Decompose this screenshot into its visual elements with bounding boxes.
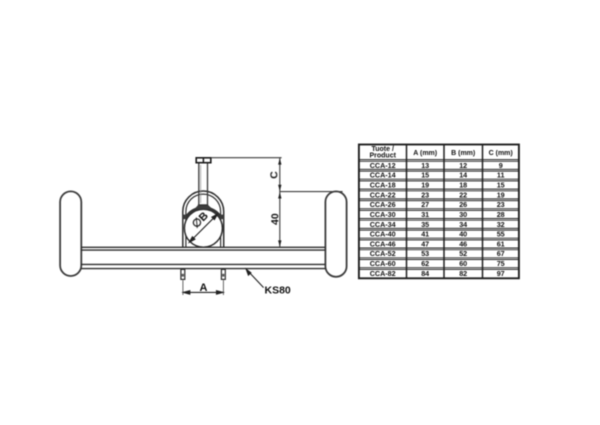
svg-text:CCA-60: CCA-60 bbox=[370, 259, 396, 268]
svg-text:23: 23 bbox=[421, 190, 429, 199]
svg-text:19: 19 bbox=[497, 190, 505, 199]
svg-text:Product: Product bbox=[369, 152, 396, 159]
svg-text:18: 18 bbox=[459, 181, 467, 190]
svg-text:40: 40 bbox=[459, 230, 467, 239]
svg-text:52: 52 bbox=[459, 249, 467, 258]
svg-text:CCA-12: CCA-12 bbox=[370, 161, 396, 170]
svg-text:CCA-46: CCA-46 bbox=[370, 239, 396, 248]
svg-text:14: 14 bbox=[459, 171, 467, 180]
svg-text:15: 15 bbox=[421, 171, 429, 180]
svg-text:35: 35 bbox=[421, 220, 429, 229]
svg-text:KS80: KS80 bbox=[265, 285, 291, 297]
svg-text:CCA-18: CCA-18 bbox=[370, 181, 396, 190]
svg-text:34: 34 bbox=[459, 220, 467, 229]
svg-text:15: 15 bbox=[497, 181, 505, 190]
svg-text:26: 26 bbox=[459, 200, 467, 209]
svg-text:27: 27 bbox=[421, 200, 429, 209]
svg-text:62: 62 bbox=[421, 259, 429, 268]
svg-text:CCA-30: CCA-30 bbox=[370, 210, 396, 219]
svg-text:32: 32 bbox=[497, 220, 505, 229]
svg-text:CCA-34: CCA-34 bbox=[370, 220, 396, 229]
svg-text:CCA-82: CCA-82 bbox=[370, 269, 396, 278]
svg-text:28: 28 bbox=[497, 210, 505, 219]
svg-text:A (mm): A (mm) bbox=[413, 150, 437, 157]
svg-text:46: 46 bbox=[459, 239, 467, 248]
svg-text:30: 30 bbox=[459, 210, 467, 219]
svg-text:60: 60 bbox=[459, 259, 467, 268]
svg-text:9: 9 bbox=[499, 161, 503, 170]
svg-text:CCA-52: CCA-52 bbox=[370, 249, 396, 258]
svg-text:22: 22 bbox=[459, 190, 467, 199]
svg-text:97: 97 bbox=[497, 269, 505, 278]
svg-text:CCA-22: CCA-22 bbox=[370, 190, 396, 199]
svg-text:41: 41 bbox=[421, 230, 429, 239]
svg-text:C: C bbox=[268, 171, 280, 179]
svg-text:67: 67 bbox=[497, 249, 505, 258]
svg-text:61: 61 bbox=[497, 239, 505, 248]
svg-text:B (mm): B (mm) bbox=[451, 150, 475, 157]
svg-text:CCA-14: CCA-14 bbox=[370, 171, 396, 180]
svg-text:84: 84 bbox=[421, 269, 429, 278]
svg-text:CCA-26: CCA-26 bbox=[370, 200, 396, 209]
svg-text:47: 47 bbox=[421, 239, 429, 248]
svg-text:53: 53 bbox=[421, 249, 429, 258]
svg-text:19: 19 bbox=[421, 181, 429, 190]
svg-text:23: 23 bbox=[497, 200, 505, 209]
svg-text:11: 11 bbox=[497, 171, 505, 180]
svg-text:A: A bbox=[200, 282, 208, 294]
svg-text:31: 31 bbox=[421, 210, 429, 219]
svg-text:13: 13 bbox=[421, 161, 429, 170]
svg-text:40: 40 bbox=[269, 213, 281, 225]
svg-text:55: 55 bbox=[497, 230, 505, 239]
svg-text:75: 75 bbox=[497, 259, 505, 268]
svg-text:82: 82 bbox=[459, 269, 467, 278]
svg-text:C (mm): C (mm) bbox=[489, 150, 513, 157]
svg-text:CCA-40: CCA-40 bbox=[370, 230, 396, 239]
svg-text:12: 12 bbox=[459, 161, 467, 170]
